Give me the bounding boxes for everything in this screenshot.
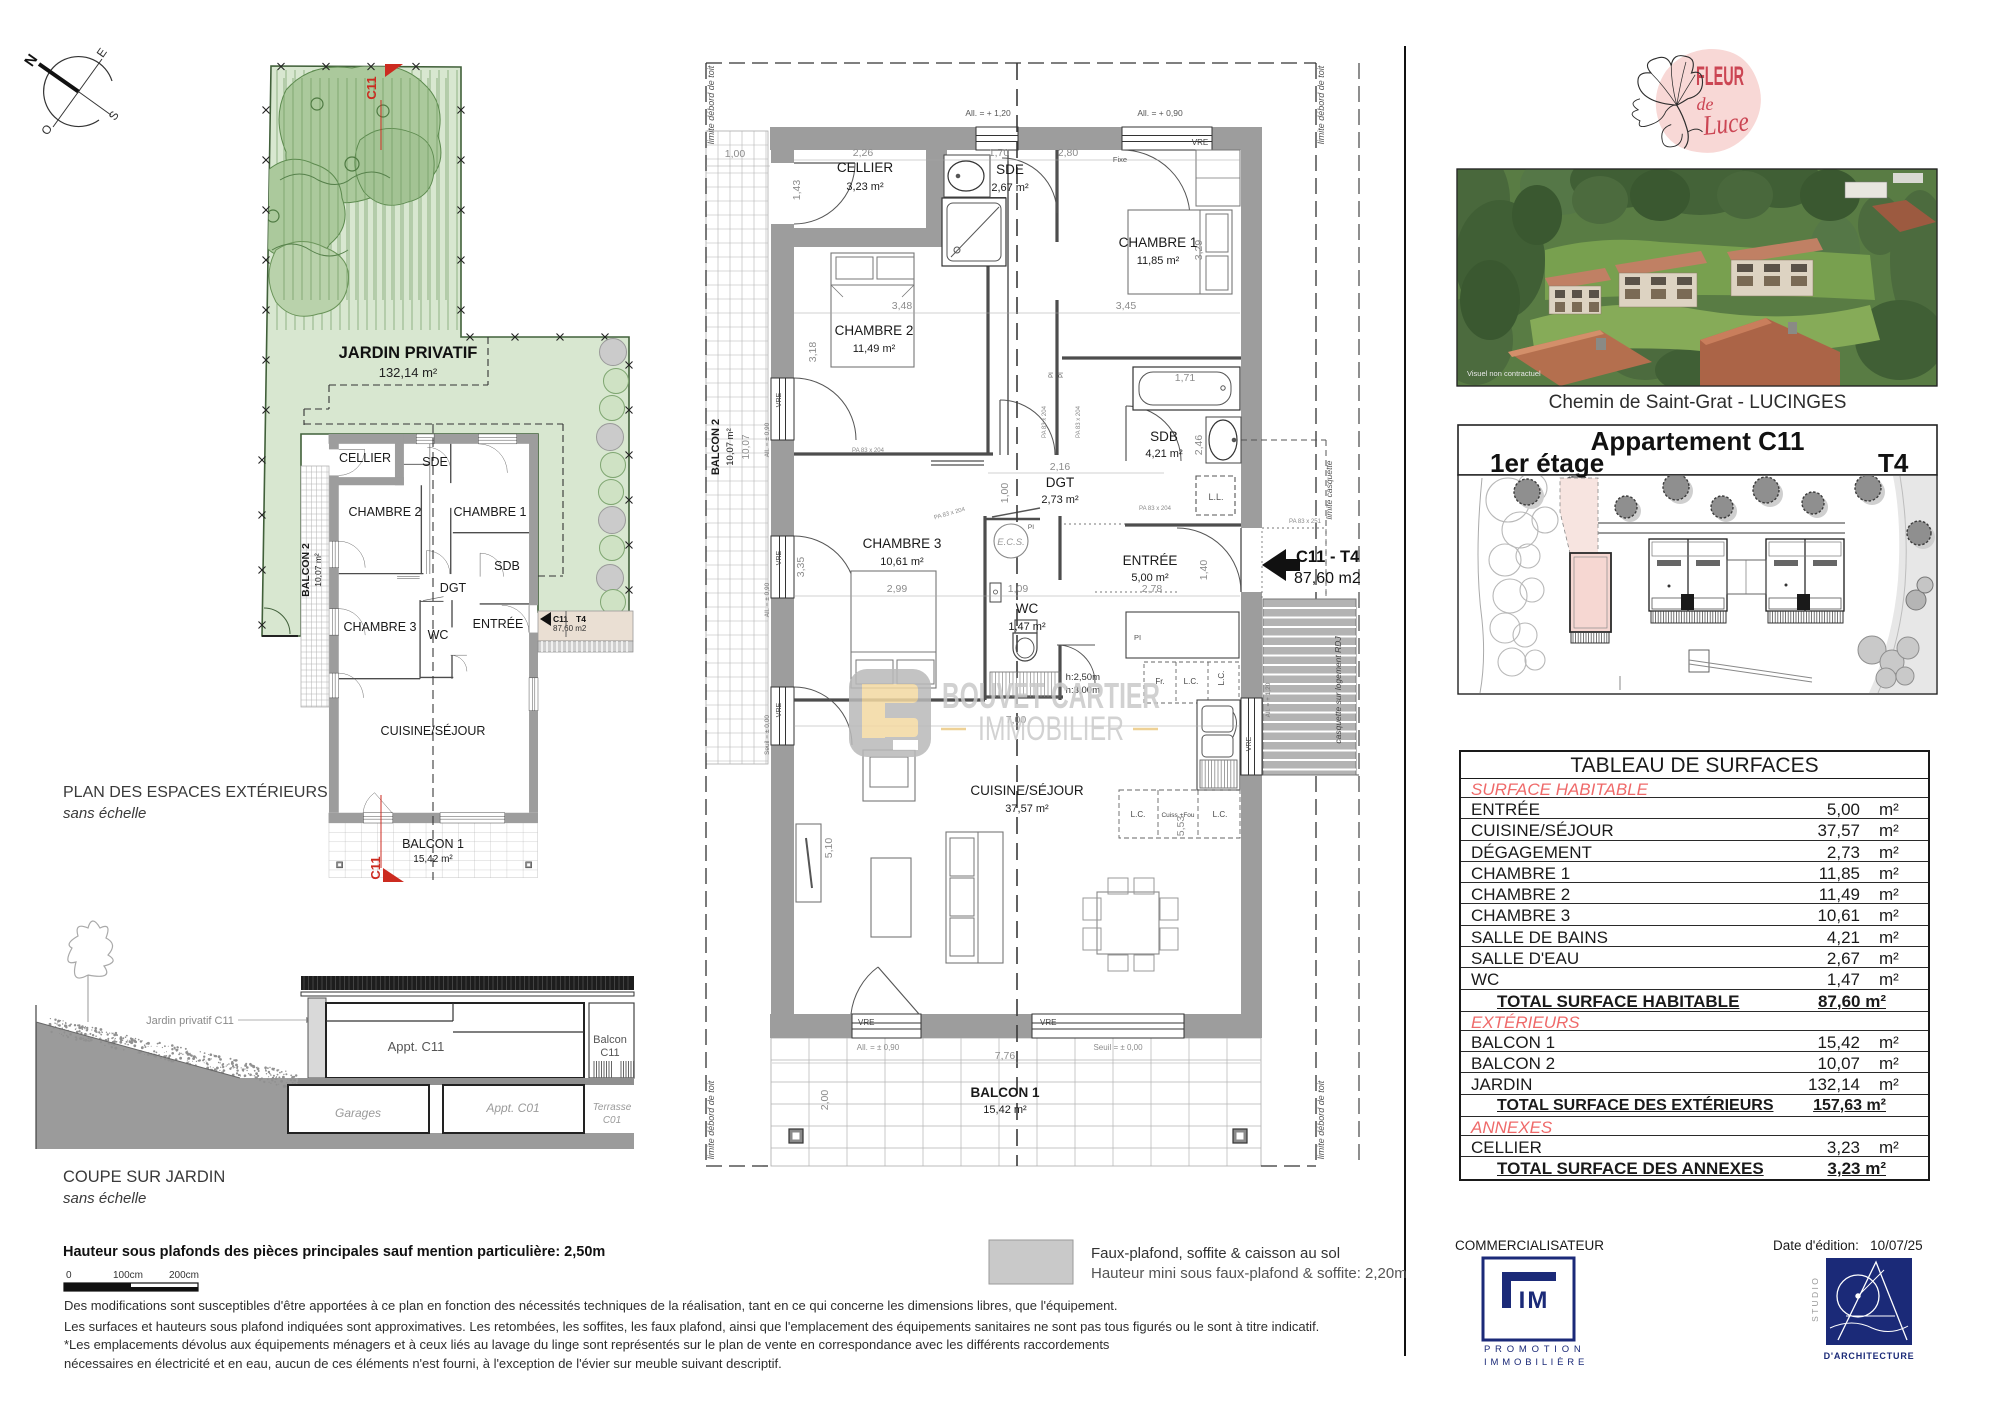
svg-text:15,42 m²: 15,42 m² <box>413 854 453 865</box>
svg-text:SDB: SDB <box>1150 429 1178 444</box>
svg-text:3,35: 3,35 <box>795 557 807 578</box>
svg-text:WC: WC <box>428 628 449 642</box>
svg-text:37,57 m²: 37,57 m² <box>1005 803 1049 815</box>
svg-text:VRE: VRE <box>776 392 783 407</box>
svg-text:132,14 m²: 132,14 m² <box>379 365 438 380</box>
svg-text:PI: PI <box>1028 524 1034 531</box>
svg-text:All. = + 1,20: All. = + 1,20 <box>1265 682 1272 717</box>
svg-text:PI: PI <box>1134 633 1141 642</box>
svg-text:1,71: 1,71 <box>1175 372 1196 384</box>
svg-text:CUISINE/SÉJOUR: CUISINE/SÉJOUR <box>381 723 486 738</box>
svg-text:VRE: VRE <box>776 702 783 717</box>
svg-text:1,40: 1,40 <box>1198 560 1210 581</box>
svg-text:1,09: 1,09 <box>1008 583 1029 595</box>
svg-text:Seuil = ± 0,00: Seuil = ± 0,00 <box>1093 1043 1143 1052</box>
svg-text:VRE: VRE <box>858 1018 874 1027</box>
svg-text:All. = ± 0,90: All. = ± 0,90 <box>857 1043 900 1052</box>
svg-text:All. = + 0,90: All. = + 0,90 <box>1137 108 1183 118</box>
svg-text:L.L.: L.L. <box>1208 492 1223 502</box>
svg-text:PA 83 x 204: PA 83 x 204 <box>1042 405 1048 438</box>
svg-text:L.C.: L.C. <box>1217 671 1226 686</box>
svg-text:200cm: 200cm <box>169 1270 199 1281</box>
svg-text:2,67 m²: 2,67 m² <box>991 182 1029 194</box>
svg-text:4,21 m²: 4,21 m² <box>1145 448 1183 460</box>
svg-text:Balcon: Balcon <box>593 1034 627 1046</box>
svg-text:5,10: 5,10 <box>823 838 835 859</box>
svg-text:SDB: SDB <box>494 559 520 573</box>
svg-text:Jardin privatif C11: Jardin privatif C11 <box>146 1015 234 1027</box>
svg-text:limite débord de toit: limite débord de toit <box>706 65 716 144</box>
svg-text:E.C.S.: E.C.S. <box>997 537 1024 548</box>
svg-text:PI: PI <box>1059 372 1065 378</box>
svg-text:1,47 m²: 1,47 m² <box>1008 621 1046 633</box>
svg-text:CHAMBRE 3: CHAMBRE 3 <box>344 620 417 634</box>
svg-text:3,45: 3,45 <box>1116 300 1137 312</box>
svg-text:3,23 m²: 3,23 m² <box>846 181 884 193</box>
svg-text:2,16: 2,16 <box>1050 461 1071 473</box>
svg-text:C01: C01 <box>603 1115 621 1126</box>
svg-text:PA 83 x 204: PA 83 x 204 <box>852 448 885 454</box>
svg-text:C11: C11 <box>600 1047 619 1059</box>
svg-text:3,18: 3,18 <box>807 342 819 363</box>
svg-text:PA 83 x 204: PA 83 x 204 <box>934 507 967 522</box>
svg-text:CHAMBRE 1: CHAMBRE 1 <box>454 505 527 519</box>
svg-text:100cm: 100cm <box>113 1270 143 1281</box>
svg-text:IM: IM <box>1519 1287 1550 1314</box>
svg-text:1,70: 1,70 <box>989 147 1010 159</box>
svg-text:Luce: Luce <box>1701 106 1751 142</box>
svg-text:S: S <box>106 108 122 123</box>
svg-text:C11: C11 <box>364 76 379 99</box>
svg-text:DGT: DGT <box>440 581 467 595</box>
svg-text:2,78: 2,78 <box>1142 583 1163 595</box>
svg-text:WC: WC <box>1016 601 1039 616</box>
svg-text:CELLIER: CELLIER <box>339 451 391 465</box>
svg-text:C11: C11 <box>368 856 383 879</box>
svg-text:15,42 m²: 15,42 m² <box>983 1104 1027 1116</box>
svg-text:N: N <box>21 51 41 70</box>
svg-text:C11 - T4: C11 - T4 <box>1296 548 1360 566</box>
svg-text:L.C.: L.C. <box>1131 810 1146 819</box>
svg-text:FLEUR: FLEUR <box>1696 61 1744 91</box>
svg-text:PA 83 x 204: PA 83 x 204 <box>1076 405 1082 438</box>
svg-text:2,80: 2,80 <box>1058 147 1079 159</box>
svg-text:10,07: 10,07 <box>741 434 752 459</box>
svg-text:CHAMBRE 2: CHAMBRE 2 <box>349 505 422 519</box>
svg-text:limite débord de toit: limite débord de toit <box>1316 65 1326 144</box>
svg-text:VRE: VRE <box>1192 138 1208 147</box>
svg-text:VRE: VRE <box>1040 1018 1056 1027</box>
svg-text:CHAMBRE 3: CHAMBRE 3 <box>863 536 942 551</box>
svg-text:limite débord de toit: limite débord de toit <box>706 1080 716 1159</box>
svg-text:3,48: 3,48 <box>892 300 913 312</box>
svg-text:10,07 m²: 10,07 m² <box>313 553 323 587</box>
svg-text:SDE: SDE <box>422 455 448 469</box>
svg-text:Terrasse: Terrasse <box>593 1102 632 1113</box>
svg-text:10,61 m²: 10,61 m² <box>880 556 924 568</box>
svg-text:10,07 m²: 10,07 m² <box>725 428 736 466</box>
svg-text:Fixe: Fixe <box>1113 155 1127 164</box>
svg-text:All. = ± 0,90: All. = ± 0,90 <box>764 422 771 457</box>
svg-text:1,00: 1,00 <box>999 483 1011 504</box>
svg-text:2,26: 2,26 <box>853 147 874 159</box>
svg-text:CELLIER: CELLIER <box>837 160 894 175</box>
svg-text:D'ARCHITECTURE: D'ARCHITECTURE <box>1824 1351 1915 1361</box>
svg-text:JARDIN PRIVATIF: JARDIN PRIVATIF <box>339 344 478 362</box>
svg-text:1,43: 1,43 <box>791 180 803 201</box>
svg-text:PI: PI <box>1049 372 1055 378</box>
svg-text:1,00: 1,00 <box>725 148 746 160</box>
svg-text:87,60 m2: 87,60 m2 <box>1294 570 1361 587</box>
svg-text:ENTRÉE: ENTRÉE <box>473 616 524 631</box>
svg-text:2,99: 2,99 <box>887 583 908 595</box>
svg-text:CUISINE/SÉJOUR: CUISINE/SÉJOUR <box>970 783 1084 798</box>
svg-text:5,53: 5,53 <box>1175 816 1187 837</box>
svg-text:Appt. C11: Appt. C11 <box>388 1039 445 1054</box>
svg-text:DGT: DGT <box>1046 475 1075 490</box>
svg-text:2,00: 2,00 <box>819 1090 831 1111</box>
svg-text:E: E <box>94 45 110 60</box>
svg-text:87,60 m2: 87,60 m2 <box>553 624 587 633</box>
svg-text:L.C.: L.C. <box>1213 810 1228 819</box>
svg-text:L.C.: L.C. <box>1184 677 1199 686</box>
svg-text:Appt. C01: Appt. C01 <box>485 1101 539 1115</box>
svg-text:11,85 m²: 11,85 m² <box>1137 255 1180 267</box>
svg-text:BALCON 2: BALCON 2 <box>300 543 312 597</box>
svg-text:BALCON 1: BALCON 1 <box>970 1085 1039 1100</box>
svg-text:2,46: 2,46 <box>1193 435 1205 456</box>
svg-text:limite débord de toit: limite débord de toit <box>1316 1080 1326 1159</box>
svg-text:PA 83 x 204: PA 83 x 204 <box>1139 506 1172 512</box>
svg-text:PA 83 x 251: PA 83 x 251 <box>1289 519 1322 525</box>
svg-text:VRE: VRE <box>1246 736 1253 751</box>
svg-text:Garages: Garages <box>335 1106 381 1120</box>
svg-text:CHAMBRE 1: CHAMBRE 1 <box>1119 235 1198 250</box>
svg-text:Seuil = ± 0,00: Seuil = ± 0,00 <box>764 715 771 755</box>
svg-text:0: 0 <box>66 1270 72 1281</box>
svg-text:SDE: SDE <box>996 162 1024 177</box>
svg-text:casquette sur logement RDJ: casquette sur logement RDJ <box>1333 636 1343 744</box>
svg-text:BALCON 1: BALCON 1 <box>402 837 464 851</box>
svg-text:5,00 m²: 5,00 m² <box>1131 572 1169 584</box>
svg-text:VRE: VRE <box>776 550 783 565</box>
svg-text:Visuel non contractuel: Visuel non contractuel <box>1467 369 1541 378</box>
svg-text:S T U D I O: S T U D I O <box>1810 1278 1820 1322</box>
svg-text:P R O M O T I O N: P R O M O T I O N <box>1484 1344 1582 1355</box>
svg-text:T4: T4 <box>576 614 586 624</box>
svg-text:ENTRÉE: ENTRÉE <box>1123 553 1178 568</box>
svg-text:limite casquette: limite casquette <box>1324 460 1334 519</box>
svg-text:All. = + 1,20: All. = + 1,20 <box>965 108 1011 118</box>
svg-text:I M M O B I L I È R E: I M M O B I L I È R E <box>1484 1357 1585 1368</box>
svg-text:11,49 m²: 11,49 m² <box>853 343 896 355</box>
svg-text:O: O <box>38 122 55 138</box>
svg-text:IMMOBILIER: IMMOBILIER <box>978 710 1124 748</box>
svg-text:BALCON 2: BALCON 2 <box>710 419 722 475</box>
svg-text:CHAMBRE 2: CHAMBRE 2 <box>835 323 914 338</box>
svg-text:All. = ± 0,90: All. = ± 0,90 <box>764 582 771 617</box>
svg-text:7,76: 7,76 <box>995 1050 1016 1062</box>
svg-text:2,73 m²: 2,73 m² <box>1041 494 1079 506</box>
